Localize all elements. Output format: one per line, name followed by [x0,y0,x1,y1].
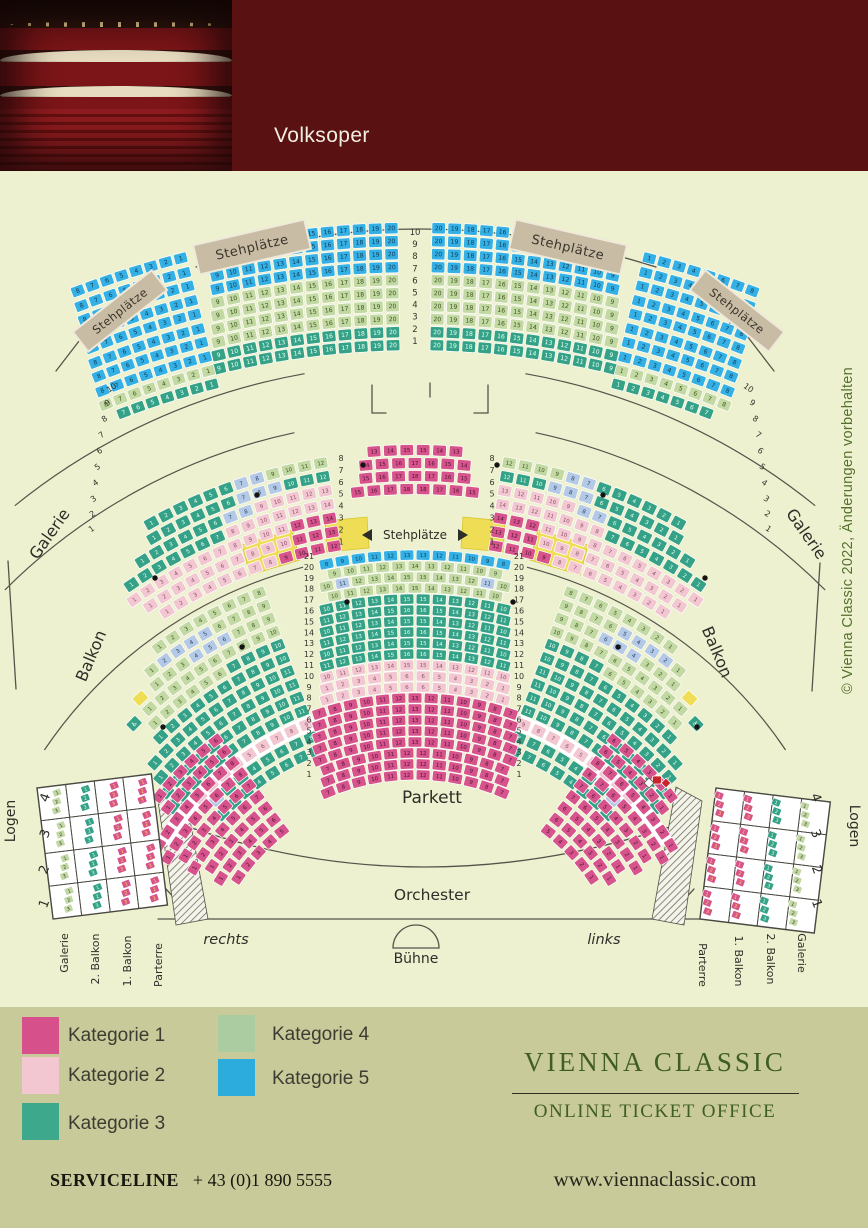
seat[interactable]: 8 [569,664,586,680]
seat[interactable]: 15 [306,319,321,332]
seat[interactable]: 11 [573,276,588,289]
seat[interactable]: 14 [289,268,304,281]
seat[interactable]: 6 [130,400,146,414]
seat[interactable]: 5 [690,311,706,325]
seat[interactable]: ♿ [126,715,143,732]
seat[interactable]: 1 [143,662,160,679]
seat[interactable]: 15 [350,486,365,498]
seat[interactable]: 2 [158,743,175,760]
seat[interactable]: 3 [661,302,676,316]
seat[interactable]: 16 [322,317,337,330]
seat[interactable]: 16 [495,239,509,251]
seat[interactable]: 12 [464,597,479,609]
seat[interactable]: 1 [213,870,229,887]
seat[interactable]: 17 [478,290,492,302]
seat[interactable]: 10 [549,625,565,640]
seat[interactable]: 17 [338,342,352,354]
seat[interactable]: 9 [259,657,275,672]
seat[interactable]: 2 [657,255,672,269]
seat[interactable]: 13 [273,270,288,283]
seat[interactable]: 16 [400,649,414,660]
seat[interactable]: 12 [351,641,366,653]
seat[interactable]: 8 [487,725,503,739]
seat[interactable]: 5 [114,269,130,283]
seat[interactable]: 10 [359,740,374,753]
seat[interactable]: 11 [495,636,511,649]
seat[interactable]: 4 [629,684,646,700]
seat[interactable]: 6 [207,515,224,530]
seat[interactable]: 7 [112,392,128,406]
seat[interactable]: 4 [177,529,194,545]
seat[interactable]: 9 [255,644,271,659]
seat[interactable]: 19 [447,249,461,261]
seat[interactable]: 18 [463,276,477,288]
seat[interactable]: 15 [510,319,525,332]
seat[interactable]: 13 [408,715,422,725]
seat[interactable]: 15 [383,627,397,638]
seat[interactable]: 14 [433,445,447,457]
seat[interactable]: 3 [654,331,669,345]
seat[interactable]: 3 [643,580,660,596]
seat[interactable]: 11 [284,678,300,693]
seat[interactable]: 6 [556,800,573,816]
seat[interactable]: 14 [383,445,397,457]
seat[interactable]: 4 [184,684,201,700]
seat[interactable]: 9 [327,567,342,580]
seat[interactable]: 18 [463,263,477,275]
seat[interactable]: 17 [392,471,406,482]
seat[interactable]: 4 [629,572,646,588]
seat[interactable]: 2 [169,298,184,312]
seat[interactable]: 11 [279,664,295,679]
seat[interactable]: 18 [408,471,422,482]
seat[interactable]: 5 [134,353,150,367]
seat[interactable]: 2 [676,567,693,584]
seat[interactable]: 1 [143,515,160,531]
seat[interactable]: 20 [430,340,444,352]
seat[interactable]: 14 [383,638,397,649]
seat[interactable]: 5 [202,487,219,502]
seat[interactable]: 2 [161,666,178,683]
seat[interactable]: 6 [211,666,228,682]
seat[interactable]: 11 [242,302,257,316]
seat[interactable]: 12 [527,504,543,518]
seat[interactable]: 10 [319,580,335,593]
seat[interactable]: 14 [289,255,304,268]
seat[interactable]: 9 [343,710,359,723]
seat[interactable]: 4 [676,307,692,321]
seat[interactable]: 6 [117,345,133,359]
seat[interactable]: 8 [720,383,736,398]
seat[interactable]: 1 [147,754,164,771]
seat[interactable]: 11 [573,302,588,316]
seat[interactable]: 16 [392,458,406,469]
seat[interactable]: 12 [416,770,430,781]
seat[interactable]: 4 [149,349,165,363]
seat[interactable]: 15 [416,638,430,649]
seat[interactable]: 18 [462,302,476,314]
seat[interactable]: 5 [203,688,220,704]
seat[interactable]: 18 [463,237,477,249]
seat[interactable]: 10 [351,553,366,565]
seat[interactable]: 2 [479,678,495,691]
seat[interactable]: 14 [367,628,382,640]
seat[interactable]: 9 [267,481,283,495]
seat[interactable]: 11 [319,636,335,649]
seat[interactable]: 2 [179,340,194,354]
seat[interactable]: 16 [495,226,509,238]
seat[interactable]: 14 [320,498,335,511]
seat[interactable]: 6 [257,800,274,816]
seat[interactable]: 8 [589,524,606,539]
seat[interactable]: 18 [354,315,368,327]
seat[interactable]: 7 [578,490,594,505]
seat[interactable]: 5 [615,674,632,690]
seat[interactable]: 3 [660,573,677,589]
seat[interactable]: 10 [275,651,291,666]
seat[interactable]: 12 [392,704,406,715]
seat[interactable]: 6 [607,653,624,669]
seat[interactable]: 11 [495,614,511,627]
seat[interactable]: 1 [628,860,644,877]
seat[interactable]: 11 [448,551,463,562]
seat[interactable]: 11 [440,705,455,717]
seat[interactable]: 11 [440,694,455,706]
seat[interactable]: 6 [211,618,228,634]
seat[interactable]: 6 [208,702,225,718]
seat[interactable]: 13 [274,323,289,336]
seat[interactable]: 4 [679,292,695,306]
seat[interactable]: 13 [408,704,422,714]
seat[interactable]: 2 [653,270,668,284]
seat[interactable]: 10 [496,580,512,593]
seat[interactable]: 8 [496,558,512,571]
seat[interactable]: 20 [430,314,444,326]
seat[interactable]: 10 [539,651,555,666]
seat[interactable]: 8 [224,524,241,539]
seat[interactable]: 14 [367,606,382,618]
seat[interactable]: 9 [480,555,495,567]
seat[interactable]: 10 [367,761,382,773]
seat[interactable]: 2 [646,298,661,312]
seat[interactable]: 9 [471,732,487,745]
seat[interactable]: 1 [142,597,159,614]
seat[interactable]: 5 [631,558,648,574]
seat[interactable]: 5 [607,605,624,621]
seat[interactable]: 9 [554,704,571,720]
seat[interactable]: 12 [464,641,479,653]
seat[interactable]: 1 [621,336,636,349]
seat[interactable]: 3 [644,643,661,659]
seat[interactable]: 2 [139,582,156,599]
seat[interactable]: 11 [383,759,398,771]
seat[interactable]: 6 [216,679,233,695]
seat[interactable]: 12 [557,312,572,325]
seat[interactable]: 3 [231,845,247,862]
seat[interactable]: 7 [709,363,725,377]
seat[interactable]: 12 [424,737,438,748]
seat[interactable]: 17 [336,225,350,237]
seat[interactable]: 9 [554,657,570,672]
seat[interactable]: 4 [580,821,597,838]
seat[interactable]: 9 [604,308,620,322]
seat[interactable]: 17 [337,290,351,302]
seat[interactable]: 12 [400,759,414,770]
seat[interactable]: 10 [269,495,285,509]
seat[interactable]: 9 [210,322,226,336]
seat[interactable]: 11 [335,577,350,589]
seat[interactable]: 10 [488,590,504,603]
seat[interactable]: 10 [588,345,604,359]
seat[interactable]: 11 [375,694,390,706]
seat[interactable]: 7 [705,378,721,392]
seat[interactable]: 8 [70,284,86,298]
seat[interactable]: 6 [265,812,282,828]
seat[interactable]: 1 [158,603,175,620]
seat[interactable]: 12 [464,664,479,676]
seat[interactable]: 4 [233,821,250,838]
seat[interactable]: 6 [582,566,599,581]
seat[interactable]: 8 [251,585,267,600]
seat[interactable]: 15 [416,444,430,455]
seat[interactable]: 1 [624,323,639,336]
seat[interactable]: 4 [189,508,206,524]
seat[interactable]: 10 [464,553,479,565]
seat[interactable]: 10 [227,358,243,372]
seat[interactable]: 7 [320,785,337,800]
seat[interactable]: 7 [602,544,619,559]
seat[interactable]: 14 [526,308,541,321]
seat[interactable]: 12 [400,748,414,759]
seat[interactable]: 20 [385,262,399,274]
seat[interactable]: 20 [386,301,400,313]
seat[interactable]: 8 [568,711,585,727]
seat[interactable]: 6 [698,345,714,359]
seat[interactable]: 6 [196,551,213,567]
seat[interactable]: 16 [494,330,509,343]
seat[interactable]: 12 [258,312,273,325]
seat[interactable]: 3 [639,656,656,672]
seat[interactable]: 12 [557,339,572,352]
seat[interactable]: 19 [369,301,383,313]
seat[interactable]: 1 [201,364,216,377]
seat[interactable]: 14 [290,321,305,334]
seat[interactable]: 10 [264,671,280,686]
seat[interactable]: 20 [385,249,399,261]
seat[interactable]: 7 [221,645,238,661]
seat[interactable]: 8 [578,638,595,653]
seat[interactable]: 13 [509,515,524,529]
seat[interactable]: 8 [235,685,252,701]
seat[interactable]: 10 [588,358,604,372]
seat[interactable]: 4 [448,684,463,696]
seat[interactable]: 3 [464,675,479,687]
seat[interactable]: 1 [614,364,629,377]
seat[interactable]: 7 [105,363,121,377]
seat[interactable]: 1 [654,603,671,620]
seat[interactable]: 13 [464,608,479,620]
seat[interactable]: 10 [545,495,561,509]
seat[interactable]: 8 [74,298,90,312]
seat[interactable]: 4 [634,670,651,686]
seat[interactable]: 5 [197,626,214,642]
seat[interactable]: 6 [123,373,139,387]
seat[interactable]: 9 [210,295,226,309]
seat[interactable]: 8 [568,618,584,633]
seat[interactable]: 14 [383,616,397,627]
seat[interactable]: 10 [367,750,382,762]
seat[interactable]: 9 [558,599,574,614]
seat[interactable]: 7 [311,706,327,720]
seat[interactable]: 20 [431,249,445,261]
seat[interactable]: 11 [335,622,350,635]
brand-website[interactable]: www.viennaclassic.com [455,1167,855,1192]
seat[interactable]: 3 [175,514,192,530]
seat[interactable]: 6 [400,671,414,682]
seat[interactable]: 2 [639,326,654,340]
seat[interactable]: 14 [289,281,304,294]
seat[interactable]: 3 [618,822,634,839]
seat[interactable]: 6 [597,679,614,695]
seat[interactable]: 4 [665,349,681,363]
seat[interactable]: 8 [251,485,267,499]
seat[interactable]: 4 [160,390,176,404]
seat[interactable]: 5 [432,682,447,693]
seat[interactable]: 13 [542,270,557,283]
seat[interactable]: 9 [463,775,479,788]
seat[interactable]: 17 [433,484,447,496]
seat[interactable]: 1 [617,351,632,364]
seat[interactable]: 16 [400,605,414,615]
seat[interactable]: 1 [637,848,653,865]
seat[interactable]: 1 [123,576,140,593]
seat[interactable]: 19 [447,262,461,274]
seat[interactable]: 10 [588,318,604,332]
seat[interactable]: 4 [645,565,662,581]
seat[interactable]: 4 [184,572,201,588]
seat[interactable]: 12 [392,693,406,704]
seat[interactable]: 4 [552,833,569,850]
seat[interactable]: 1 [180,280,195,293]
seat[interactable]: 12 [351,664,366,676]
seat[interactable]: 15 [400,594,414,604]
seat[interactable]: 19 [446,327,460,339]
seat[interactable]: 3 [169,643,186,659]
seat[interactable]: 19 [446,314,460,326]
seat[interactable]: 3 [638,514,655,530]
seat[interactable]: 3 [662,559,679,575]
seat[interactable]: 13 [408,737,422,747]
seat[interactable]: 10 [495,670,511,683]
seat[interactable]: 13 [273,297,288,310]
seat[interactable]: 3 [164,344,179,358]
seat[interactable]: 14 [432,638,446,649]
seat[interactable]: 8 [730,340,746,355]
seat[interactable]: 10 [359,718,374,730]
seat[interactable]: 7 [235,490,251,505]
seat[interactable]: 15 [359,472,373,484]
seat[interactable]: 13 [448,617,463,629]
seat[interactable]: 3 [651,536,668,552]
seat[interactable]: 8 [327,736,343,750]
seat[interactable]: 6 [701,330,717,344]
seat[interactable]: 13 [408,693,422,703]
seat[interactable]: 17 [479,225,493,237]
seat[interactable]: 11 [542,508,558,522]
seat[interactable]: 1 [667,754,684,771]
seat[interactable]: 14 [457,459,471,471]
seat[interactable]: 13 [367,662,382,674]
seat[interactable]: 12 [440,562,455,573]
seat[interactable]: 10 [359,696,374,708]
seat[interactable]: 11 [367,551,382,562]
seat[interactable]: 15 [383,649,397,660]
seat[interactable]: 9 [211,335,227,349]
seat[interactable]: 8 [716,397,732,412]
seat[interactable]: 16 [321,304,336,316]
seat[interactable]: 5 [676,368,692,382]
seat[interactable]: 8 [88,355,104,370]
seat[interactable]: 15 [400,660,414,671]
seat[interactable]: 12 [525,518,541,532]
seat[interactable]: 4 [156,377,172,391]
seat[interactable]: 4 [261,833,278,850]
seat[interactable]: 3 [171,372,186,386]
seat[interactable]: 5 [687,325,703,339]
seat[interactable]: 2 [652,666,669,683]
seat[interactable]: 3 [671,260,686,274]
seat[interactable]: 13 [367,446,381,458]
seat[interactable]: 4 [669,335,685,349]
seat[interactable]: 9 [564,677,581,693]
seat[interactable]: 3 [178,621,195,637]
seat[interactable]: 13 [274,310,289,323]
seat[interactable]: 8 [245,711,262,727]
seat[interactable]: 4 [636,529,653,545]
seat[interactable]: 11 [242,355,257,369]
seat[interactable]: 8 [245,618,261,633]
seat[interactable]: 12 [556,352,571,365]
seat[interactable]: 7 [320,773,337,788]
seat[interactable]: 12 [392,715,406,726]
seat[interactable]: 12 [557,299,572,312]
seat[interactable]: 16 [400,627,414,638]
seat[interactable]: 9 [253,499,269,514]
seat[interactable]: 4 [672,320,688,334]
seat[interactable]: 11 [515,473,530,487]
seat[interactable]: 5 [193,661,210,677]
seat[interactable]: 10 [281,463,297,477]
seat[interactable]: 15 [408,583,422,593]
seat[interactable]: 11 [319,659,335,672]
seat[interactable]: 12 [257,273,272,286]
seat[interactable]: 18 [463,250,477,262]
seat[interactable]: 1 [687,591,704,608]
seat[interactable]: 13 [367,595,382,607]
seat[interactable]: 6 [214,558,231,574]
seat[interactable]: 13 [464,630,479,642]
seat[interactable]: 7 [521,750,538,765]
seat[interactable]: 6 [616,551,633,567]
seat[interactable]: 9 [564,631,580,646]
seat[interactable]: 2 [650,284,665,298]
seat[interactable]: 9 [471,721,487,734]
seat[interactable]: 18 [462,315,476,327]
seat[interactable]: 17 [479,251,493,263]
seat[interactable]: 13 [449,446,463,458]
seat[interactable]: 5 [131,340,147,354]
seat[interactable]: 8 [587,538,604,553]
